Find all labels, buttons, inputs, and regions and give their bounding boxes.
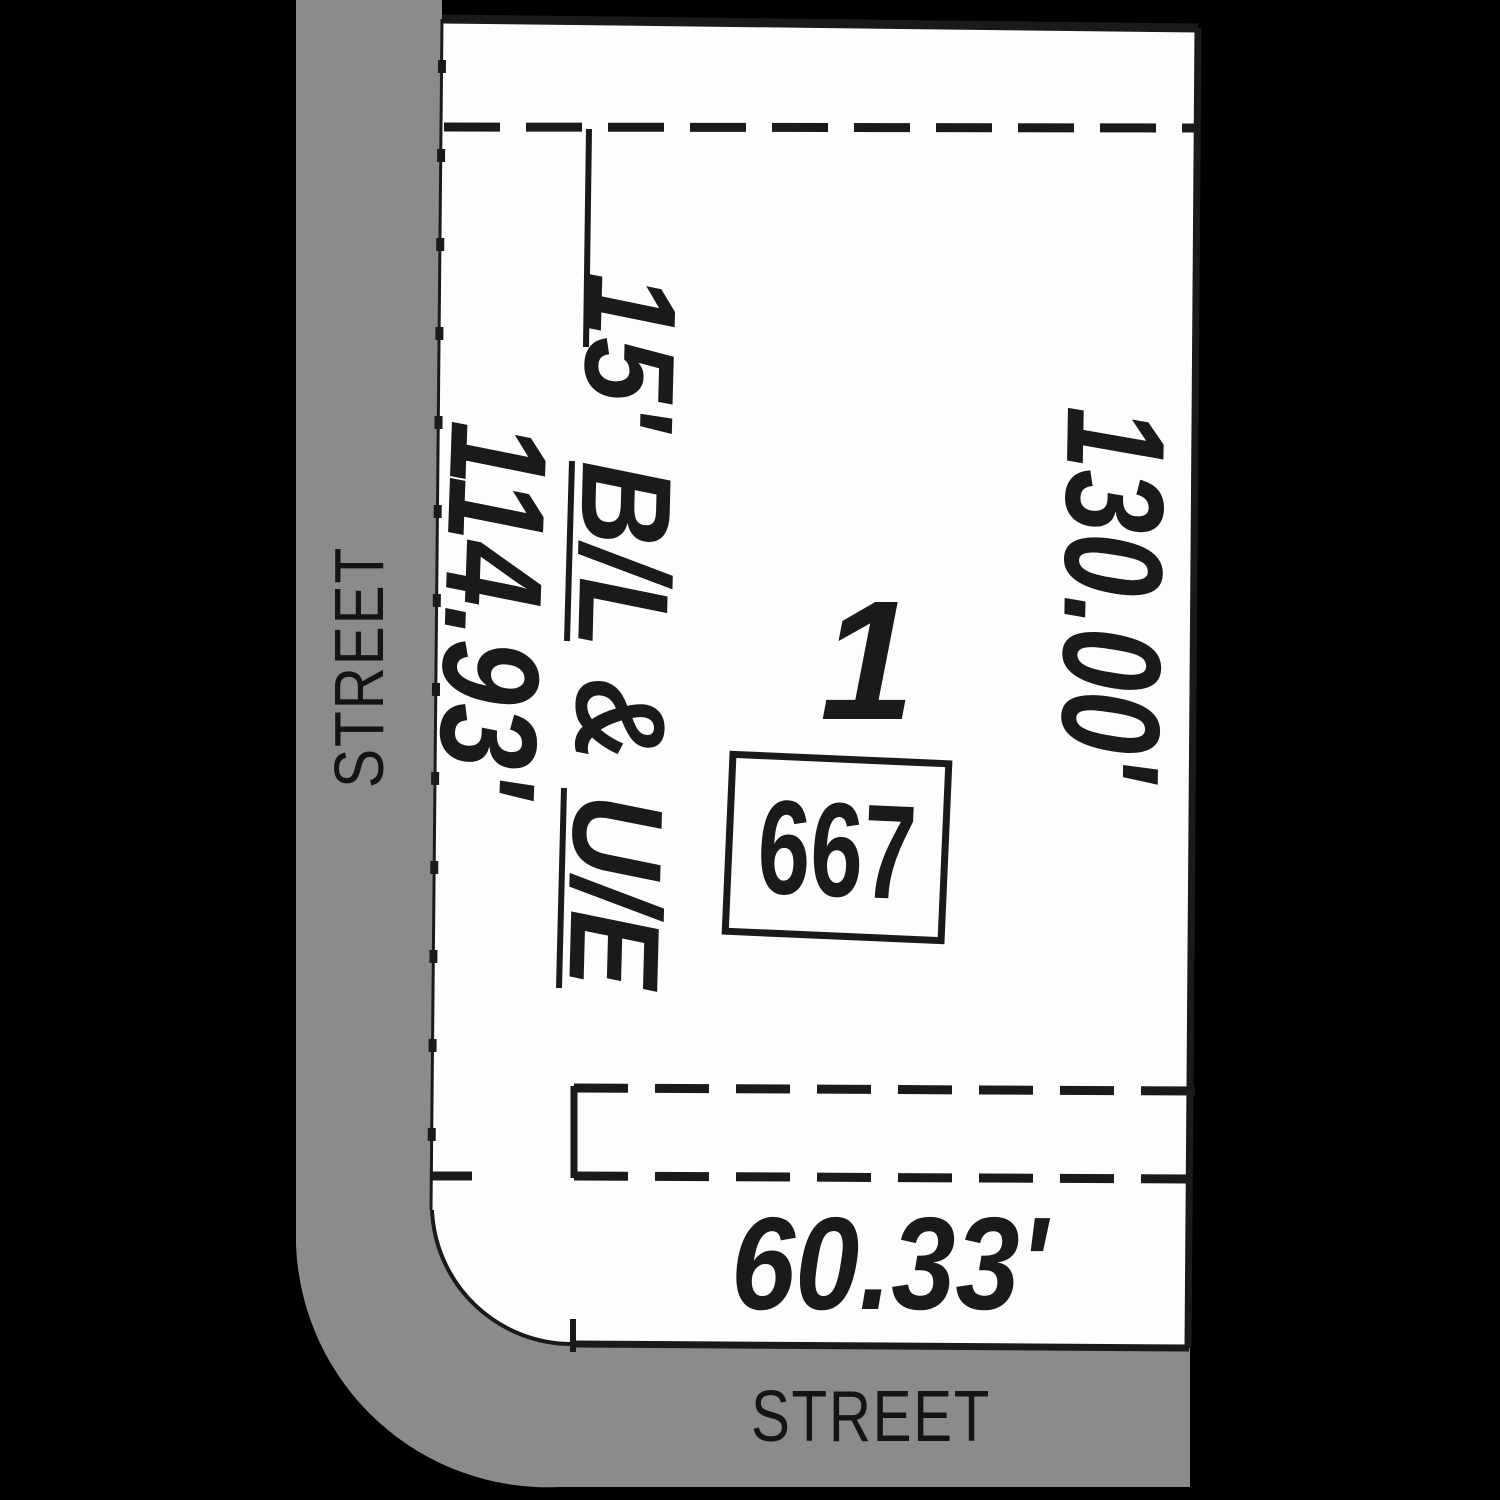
lot-right-dimension: 130.00' bbox=[1031, 405, 1195, 785]
lot-front-dimension: 60.33' bbox=[731, 1190, 1050, 1337]
street-label-left: STREET bbox=[320, 546, 398, 788]
address-number: 667 bbox=[755, 773, 919, 929]
lot-left-dimension: 114.93' bbox=[409, 419, 576, 803]
lot-boundary-bottom-line bbox=[573, 1344, 1189, 1348]
lot-number: 1 bbox=[820, 566, 915, 756]
address-box-group: 667 bbox=[725, 754, 949, 940]
plat-map-svg: 15' B/L & U/E 114.93' 130.00' 60.33' 1 6… bbox=[0, 0, 1500, 1500]
plat-map: 15' B/L & U/E 114.93' 130.00' 60.33' 1 6… bbox=[0, 0, 1500, 1500]
street-label-bottom: STREET bbox=[751, 1377, 991, 1457]
